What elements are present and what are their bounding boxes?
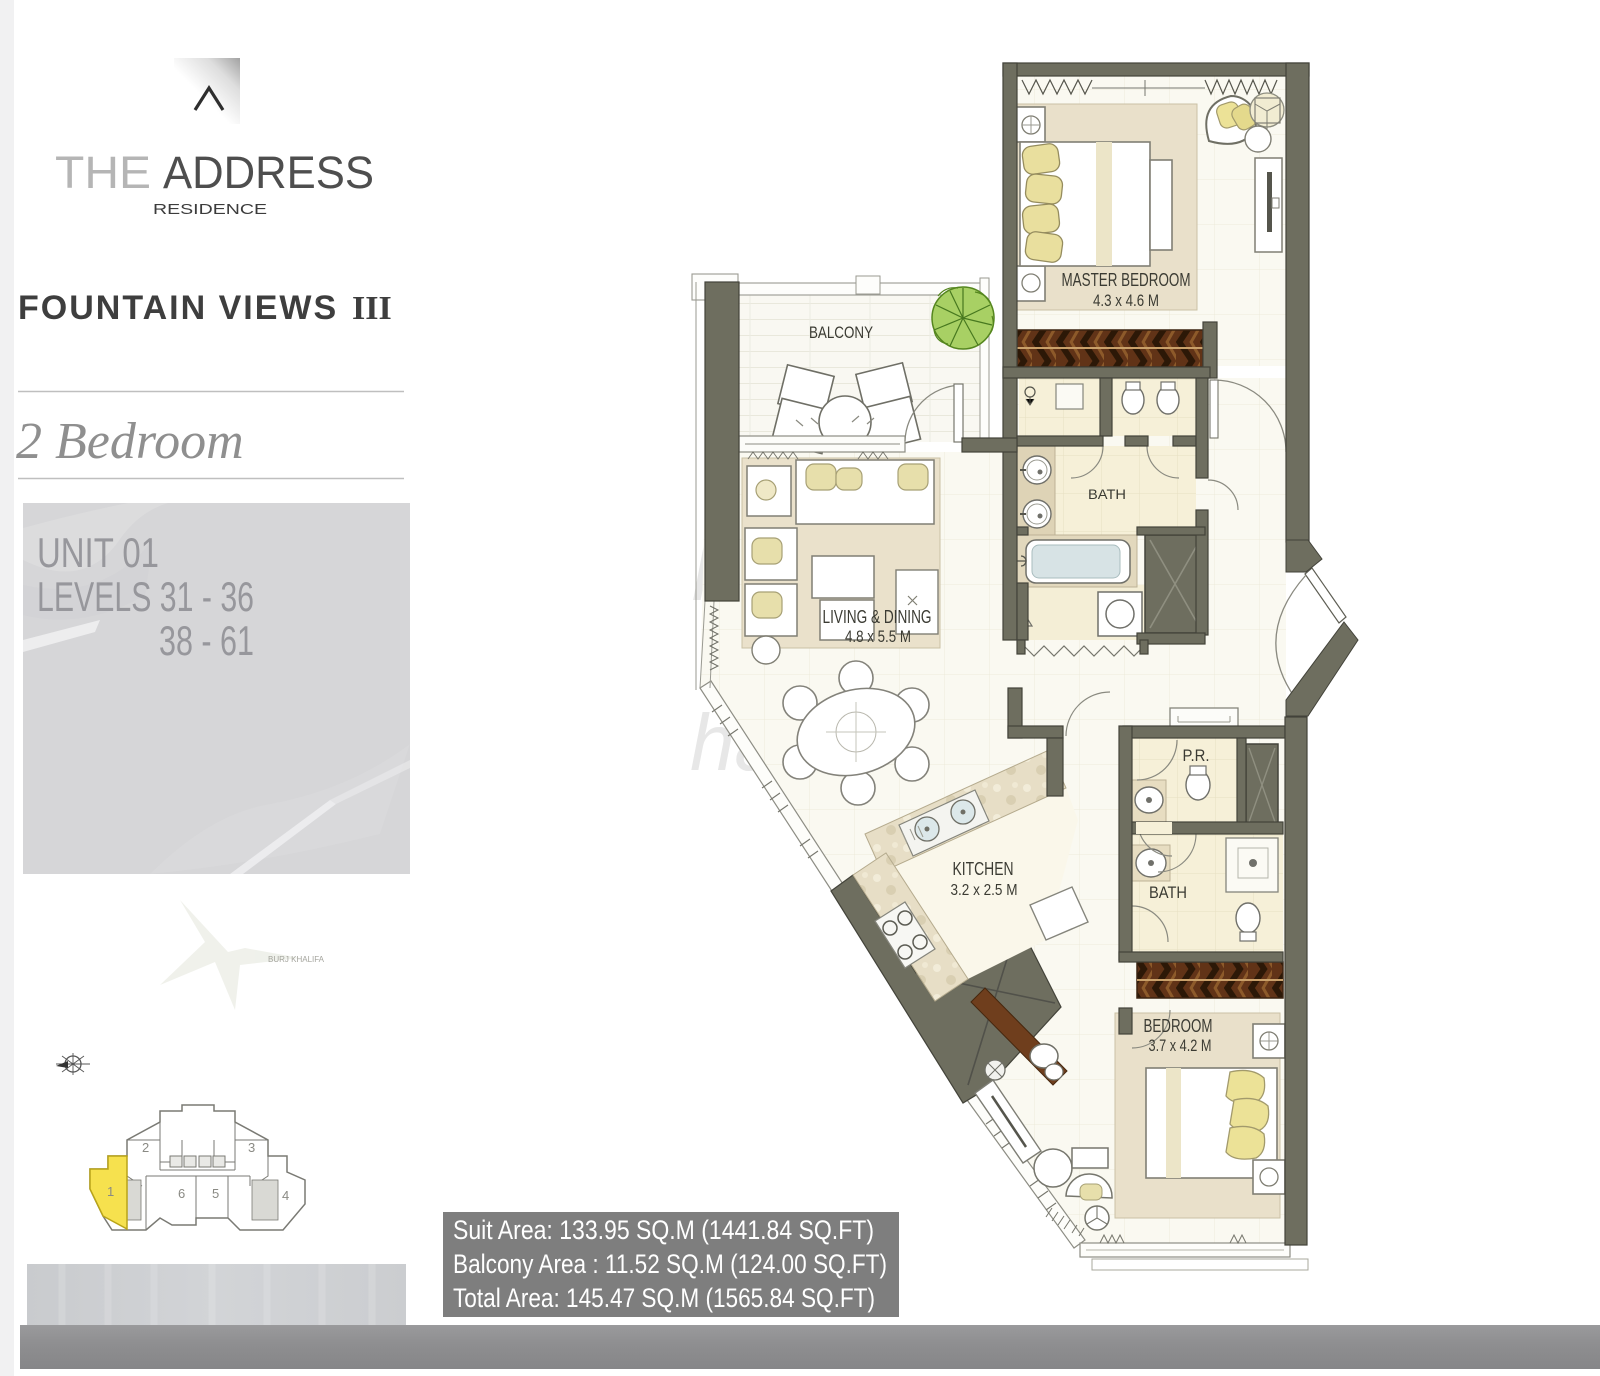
svg-text:3.7 x 4.2 M: 3.7 x 4.2 M — [1149, 1036, 1212, 1055]
svg-text:4.3 x 4.6 M: 4.3 x 4.6 M — [1093, 291, 1159, 310]
svg-text:6: 6 — [178, 1186, 185, 1201]
svg-text:THE: THE — [55, 147, 151, 198]
svg-text:BATH: BATH — [1149, 883, 1187, 902]
svg-text:Total Area: 145.47 SQ.M (1565.: Total Area: 145.47 SQ.M (1565.84 SQ.FT) — [453, 1283, 875, 1313]
svg-text:5: 5 — [212, 1186, 219, 1201]
svg-text:BURJ KHALIFA: BURJ KHALIFA — [268, 955, 325, 964]
svg-text:2 Bedroom: 2 Bedroom — [16, 413, 244, 470]
svg-text:3.2 x 2.5 M: 3.2 x 2.5 M — [951, 882, 1018, 899]
svg-text:P.R.: P.R. — [1183, 746, 1210, 765]
svg-text:UNIT 01: UNIT 01 — [37, 529, 159, 576]
svg-text:ADDRESS: ADDRESS — [163, 147, 374, 198]
svg-text:LIVING & DINING: LIVING & DINING — [823, 607, 932, 627]
svg-text:LEVELS 31 - 36: LEVELS 31 - 36 — [37, 573, 254, 620]
svg-text:BATH: BATH — [1088, 486, 1126, 502]
svg-text:3: 3 — [248, 1140, 255, 1155]
svg-text:Balcony Area : 11.52 SQ.M (124: Balcony Area : 11.52 SQ.M (124.00 SQ.FT) — [453, 1249, 887, 1279]
svg-text:4: 4 — [282, 1188, 289, 1203]
svg-text:FOUNTAIN VIEWS: FOUNTAIN VIEWS — [18, 289, 338, 327]
svg-text:38 - 61: 38 - 61 — [159, 617, 254, 664]
svg-text:4.8 x 5.5 M: 4.8 x 5.5 M — [845, 627, 911, 646]
svg-text:KITCHEN: KITCHEN — [953, 859, 1014, 879]
svg-text:1: 1 — [107, 1184, 114, 1199]
svg-text:RESIDENCE: RESIDENCE — [153, 201, 267, 218]
svg-text:Suit Area: 133.95 SQ.M (1441.: Suit Area: 133.95 SQ.M (1441.84 SQ.FT) — [453, 1215, 874, 1245]
svg-text:III: III — [352, 290, 392, 327]
svg-text:BEDROOM: BEDROOM — [1144, 1016, 1213, 1036]
svg-text:MASTER BEDROOM: MASTER BEDROOM — [1062, 270, 1191, 290]
svg-text:2: 2 — [142, 1140, 149, 1155]
svg-text:BALCONY: BALCONY — [809, 323, 873, 342]
